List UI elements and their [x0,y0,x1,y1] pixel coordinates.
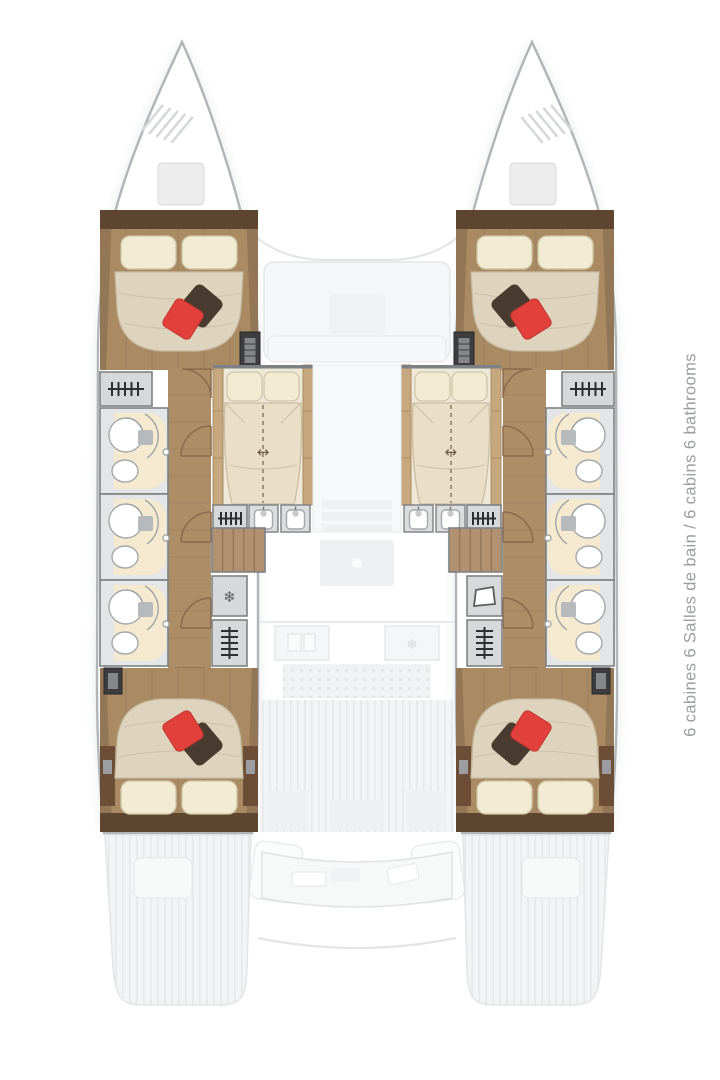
center-cabin-port [213,365,313,532]
deck-plan-page: ↔ [0,0,720,1080]
hatch-icon [474,587,495,606]
aft-cockpit-bench-ghost [248,840,466,948]
fridge-snowflake-icon: ❄ [223,588,236,606]
forward-cockpit-ghost [250,232,464,362]
center-corridor [313,365,401,532]
galley-sink-ghost [275,626,329,660]
plan-caption: 6 cabines 6 Salles de bain / 6 cabins 6 … [682,353,701,737]
salon-ghost: ❄ [259,540,455,832]
fridge-locker-port: ❄ [212,576,247,616]
galley-fridge-ghost: ❄ [385,626,439,660]
locker-port [212,620,247,666]
center-cabin-starboard [401,365,501,532]
galley-floor-ghost [283,664,431,698]
stairs-port [212,528,265,572]
hatch-locker-starboard [467,576,502,616]
locker-starboard [467,620,502,666]
deck-plan-svg: ↔ [0,0,720,1080]
stairs-starboard [449,528,502,572]
fridge-snowflake-icon: ❄ [406,637,418,653]
